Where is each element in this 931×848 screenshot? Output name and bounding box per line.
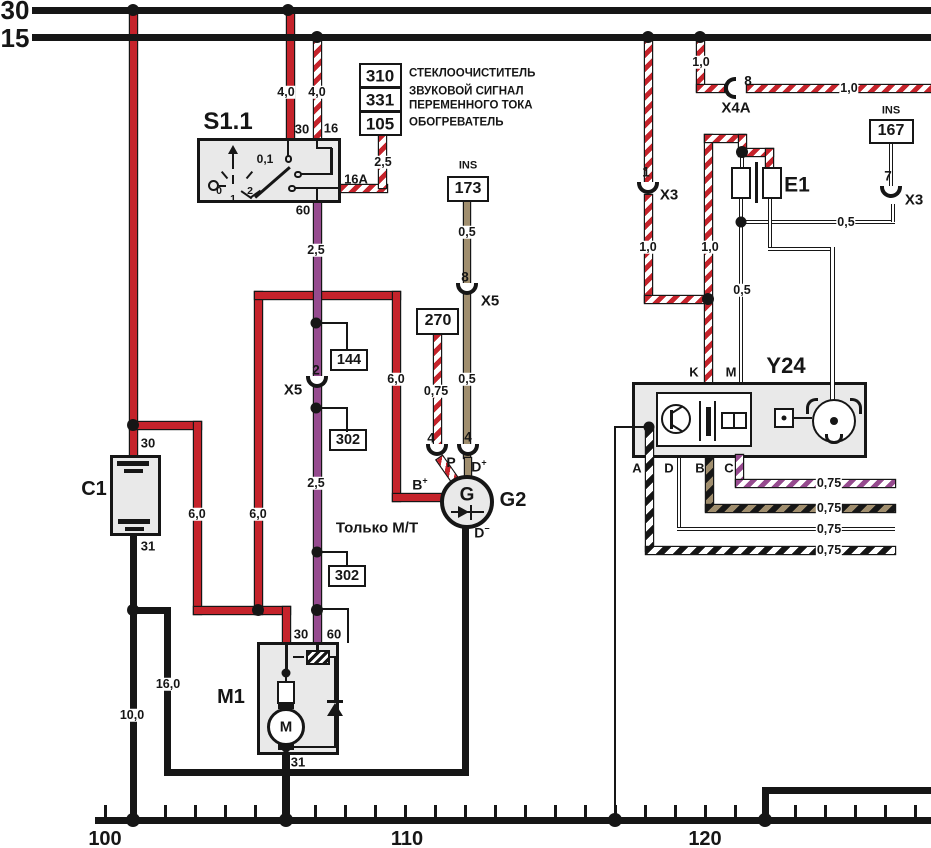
y24-td: D: [663, 462, 674, 475]
g2-dplus: D+: [470, 459, 487, 474]
ruler-tick: [824, 805, 827, 817]
ruler-110: 110: [390, 829, 424, 848]
x4a-pin: 8: [743, 74, 753, 88]
wire-y24-b-h: [706, 505, 895, 512]
y24-distributor-dot: [830, 417, 838, 425]
x4a-name: X4A: [720, 101, 751, 116]
connector-x5-2: [306, 376, 328, 388]
ref-310-label: СТЕКЛООЧИСТИТЕЛЬ: [408, 68, 536, 80]
node-c1-top: [127, 419, 139, 431]
ref-310-num: 310: [365, 68, 395, 85]
ref-302b-num: 302: [334, 569, 360, 584]
wire-c1-31-down: [130, 534, 137, 824]
node-m1-bottom: [282, 744, 291, 753]
s11-right-bus-v: [330, 148, 332, 175]
ref-302a-num: 302: [335, 433, 361, 448]
ruler-tick: [464, 805, 467, 817]
rail-step-h: [762, 787, 931, 794]
ruler-tick: [374, 805, 377, 817]
connector-x3-1: [637, 182, 659, 194]
m1-t60: 60: [326, 628, 342, 641]
s11-arrow-head: [228, 145, 238, 154]
ruler-tick: [794, 805, 797, 817]
node-302a: [311, 403, 322, 414]
y24-claw-left: [806, 398, 818, 414]
node-bus30-c1: [127, 4, 139, 16]
wire-y24-b-v: [706, 458, 713, 511]
g2-bplus: B+: [411, 477, 428, 492]
link-302b-v: [346, 551, 348, 567]
gauge-0-75-b: 0,75: [816, 477, 842, 490]
m1-ext-link-v: [347, 608, 349, 643]
m1-name: M1: [216, 687, 246, 707]
ruler-120: 120: [687, 829, 722, 848]
node-144: [311, 318, 322, 329]
wire-16-0-v: [164, 607, 171, 776]
y24-tm: M: [725, 366, 738, 379]
y24-tb: B: [694, 462, 705, 475]
bus-30: [32, 7, 931, 14]
c1-plate-short-bot: [125, 527, 144, 531]
m1-bottom-join: [286, 746, 334, 748]
m1-t31: 31: [290, 756, 306, 769]
wire-y24-a-ground: [614, 426, 617, 821]
s11-t16: 16: [323, 122, 339, 135]
connector-x4a: [724, 77, 736, 99]
c1-plate-short-top: [124, 469, 143, 473]
ruler-tick: [584, 805, 587, 817]
gauge-0-5-a: 0,5: [457, 226, 476, 239]
gauge-0-75-a: 0,75: [423, 385, 449, 398]
x3-1-pin: 1: [641, 165, 651, 179]
wire-m1-30-drop: [283, 607, 290, 646]
node-e1-top: [736, 146, 748, 158]
ruler-tick: [914, 805, 917, 817]
gauge-6-0-b: 6,0: [187, 508, 206, 521]
ruler-tick: [164, 805, 167, 817]
wiring-diagram-canvas: 30 15 4,0 4,0 2,5 2,5 2,5 6,0 6,0 6,0 10…: [0, 0, 931, 848]
x5-2-name: X5: [283, 383, 303, 398]
wire-bus30-to-s11: [287, 10, 294, 141]
s11-t16a: 16A: [343, 173, 369, 186]
gauge-0-75-d: 0,75: [816, 523, 842, 536]
ruler-tick: [104, 805, 107, 817]
s11-t30: 30: [294, 123, 310, 136]
gauge-2-5-a: 2,5: [373, 156, 392, 169]
ins-173-tag: INS: [458, 161, 478, 172]
g2-bplus-letter: B: [412, 476, 422, 492]
y24-cell-divider: [733, 412, 735, 429]
gauge-16-0: 16,0: [155, 678, 181, 691]
s11-pos-1: 1: [229, 194, 237, 205]
m1-diode-triangle: [327, 703, 343, 716]
ruler-tick: [134, 805, 137, 817]
s11-arrow-shaft: [232, 153, 234, 169]
ruler-tick: [884, 805, 887, 817]
ins-167-tag: INS: [881, 106, 901, 117]
node-red-m1: [252, 604, 264, 616]
ref-105-num: 105: [365, 116, 395, 133]
g2-dplus-letter: D: [471, 458, 481, 474]
ref-144-num: 144: [336, 353, 362, 368]
x5-8-pin: 8: [460, 270, 470, 284]
node-bus15-s11: [311, 31, 323, 43]
ruler-tick: [674, 805, 677, 817]
gauge-1-0-c: 1,0: [691, 56, 710, 69]
e1-name: E1: [783, 175, 811, 196]
wire-ground-run-h: [164, 769, 469, 776]
bus-15: [32, 34, 931, 41]
ruler-tick: [734, 805, 737, 817]
wire-e1-right-h: [768, 247, 833, 252]
gauge-0-75-e: 0,75: [816, 544, 842, 557]
m1-diode-lead-top: [334, 656, 336, 702]
link-302a-v: [346, 407, 348, 432]
g2-letter: G: [459, 486, 476, 505]
ruler-tick: [224, 805, 227, 817]
m1-t30: 30: [293, 628, 309, 641]
c1-name: C1: [80, 479, 108, 499]
ref-173-num: 173: [454, 181, 483, 197]
e1-center-bar: [755, 162, 759, 203]
ruler-tick: [344, 805, 347, 817]
ruler-tick: [284, 805, 287, 817]
ruler-tick: [404, 805, 407, 817]
connector-x3-7: [880, 186, 902, 198]
wire-6-0-mid-v: [255, 292, 262, 614]
ruler-tick: [194, 805, 197, 817]
wire-6-0-right-v: [393, 292, 400, 501]
node-c1-31: [127, 604, 139, 616]
m1-relay-coil: [306, 650, 330, 665]
c1-plate-long-bot: [118, 519, 150, 524]
y24-ta: A: [631, 462, 642, 475]
ruler-tick: [494, 805, 497, 817]
e1-element-left: [731, 167, 751, 199]
c1-plate-long-top: [117, 461, 149, 466]
g2-p-terminal: P: [445, 455, 456, 469]
connector-x5-8: [456, 283, 478, 295]
y24-name: Y24: [765, 355, 806, 377]
ruler-tick: [554, 805, 557, 817]
s11-pos-0-1: 0,1: [256, 153, 275, 165]
s11-60-lead-v: [316, 188, 318, 203]
s11-pos-2: 2: [246, 186, 254, 197]
ground-rail: [95, 817, 931, 824]
g2-dplus-sign: +: [481, 458, 486, 468]
e1-element-right: [762, 167, 782, 199]
s11-mid-lead-h: [301, 173, 332, 175]
x3-7-pin: 7: [883, 169, 893, 183]
gauge-0-5-c: 0,5: [732, 284, 751, 297]
node-y24-a: [644, 422, 655, 433]
y24-sensor-dot: [782, 416, 787, 421]
wire-bus30-to-c1: [130, 10, 137, 456]
ref-270-num: 270: [424, 313, 453, 329]
wire-y24-d-v: [677, 458, 682, 531]
g2-dminus-sign: −: [484, 524, 489, 534]
wire-6-0-top-h: [255, 292, 400, 299]
g2-name: G2: [499, 490, 528, 510]
g2-bplus-sign: +: [422, 476, 427, 486]
connector-d4: [457, 444, 479, 456]
y24-sensor-link: [794, 417, 812, 419]
node-m1-top: [282, 669, 291, 678]
ruler-tick: [614, 805, 617, 817]
gauge-1-0-a: 1,0: [638, 241, 657, 254]
gauge-10-0: 10,0: [119, 709, 145, 722]
ref-167-num: 167: [877, 123, 906, 139]
ruler-tick: [644, 805, 647, 817]
wire-bus15-to-x3-1: [645, 37, 652, 183]
ref-331-label-2: ПЕРЕМЕННОГО ТОКА: [408, 100, 534, 112]
gauge-2-5-c: 2,5: [306, 477, 325, 490]
ref-331-label-1: ЗВУКОВОЙ СИГНАЛ: [408, 86, 525, 98]
node-e1-bottom: [736, 217, 747, 228]
node-302b: [312, 547, 323, 558]
s11-name: S1.1: [202, 110, 253, 134]
node-bus30-s11: [282, 4, 294, 16]
gauge-0-75-c: 0,75: [816, 502, 842, 515]
gauge-1-0-d: 1,0: [839, 82, 858, 95]
wire-to-m1-30-h: [194, 607, 290, 614]
gauge-0-5-d: 0,5: [836, 216, 855, 229]
c1-t31: 31: [140, 540, 156, 553]
ruler-tick: [314, 805, 317, 817]
ruler-tick: [434, 805, 437, 817]
ruler-tick: [854, 805, 857, 817]
ruler-tick: [764, 805, 767, 817]
ruler-tick: [254, 805, 257, 817]
wire-y24-d-h: [677, 527, 895, 532]
s11-dash-1: [232, 175, 234, 184]
s11-pos-0: 0: [215, 186, 223, 197]
node-bus15-x3: [642, 31, 654, 43]
wire-x4a-h-left: [697, 85, 724, 92]
m1-motor-letter: M: [279, 720, 294, 735]
ref-331-num: 331: [365, 92, 395, 109]
node-purple-m1: [311, 604, 323, 616]
gauge-2-5-b: 2,5: [306, 244, 325, 257]
c1-t30: 30: [140, 437, 156, 450]
bus-30-label: 30: [0, 0, 30, 23]
g2-dminus-letter: D: [474, 524, 484, 540]
wire-c1-branch-h: [130, 422, 201, 429]
link-144-v: [346, 322, 348, 351]
ruler-100: 100: [87, 829, 122, 848]
wire-to-g2-bplus-h: [393, 494, 445, 501]
wire-y24-a-h: [646, 547, 895, 554]
wire-x3-1-corner-h: [645, 296, 711, 303]
wire-y24-a-v: [646, 430, 653, 551]
y24-tk: K: [688, 366, 699, 379]
x3-1-name: X3: [659, 188, 679, 203]
wire-g2-dminus-v: [462, 528, 469, 775]
s11-t60: 60: [295, 204, 311, 217]
bus-15-label: 15: [0, 25, 30, 51]
ruler-tick: [704, 805, 707, 817]
x3-7-name: X3: [904, 193, 924, 208]
y24-cap-line-r: [714, 401, 716, 441]
m1-coil-dash: [293, 656, 304, 658]
gauge-6-0-a: 6,0: [386, 373, 405, 386]
y24-cap-line-l: [699, 401, 701, 441]
node-bus15-x4a: [694, 31, 706, 43]
gauge-4-0-a: 4,0: [276, 86, 295, 99]
wire-e1-right-down: [768, 198, 773, 251]
x5-8-name: X5: [480, 294, 500, 309]
g2-dminus: D−: [473, 525, 490, 540]
d4-pin: 4: [463, 430, 473, 444]
g2-diode-bar: [470, 505, 472, 520]
gauge-1-0-b: 1,0: [700, 241, 719, 254]
m1-diode-lead-bot: [334, 716, 336, 748]
ruler-tick: [524, 805, 527, 817]
wire-s11-60-to-m1: [314, 203, 321, 645]
x5-2-pin: 2: [311, 363, 321, 377]
m1-resistor: [277, 681, 295, 704]
wire-to-y24-right-v: [830, 247, 835, 387]
p4-pin: 4: [426, 431, 436, 445]
wire-k-feed-v: [705, 135, 712, 386]
node-x3-k: [702, 293, 714, 305]
g2-diode-triangle: [458, 506, 469, 518]
wire-x3-7-drop: [891, 204, 896, 222]
s11-30-lead: [287, 140, 289, 156]
gauge-6-0-c: 6,0: [248, 508, 267, 521]
ref-105-label: ОБОГРЕВАТЕЛЬ: [408, 117, 505, 129]
gauge-0-5-b: 0,5: [457, 373, 476, 386]
wire-e1-to-x3-7-h: [739, 220, 895, 225]
battery-c1-box: [110, 455, 161, 536]
note-mt-only: Только М/Т: [335, 521, 419, 536]
s11-contact-top: [285, 155, 293, 163]
gauge-4-0-b: 4,0: [307, 86, 326, 99]
y24-cap-bar: [706, 407, 711, 436]
y24-tc: C: [723, 462, 734, 475]
